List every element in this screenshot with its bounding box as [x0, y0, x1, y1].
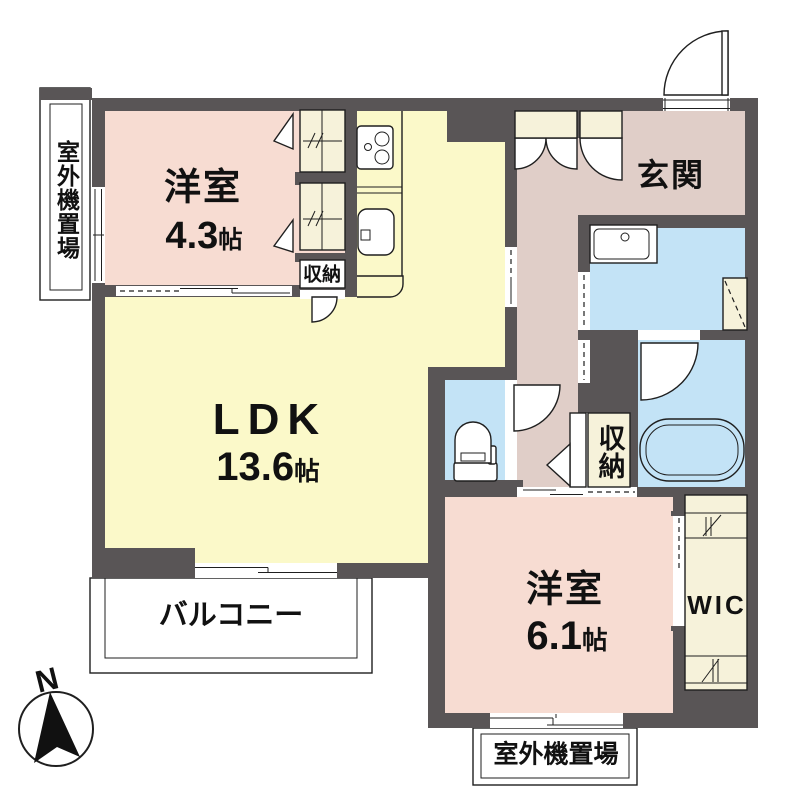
- bedroom2-size-label: 6.1帖: [526, 616, 607, 656]
- ldk-size-value: 13.6: [216, 445, 294, 489]
- bedroom1-size-unit: 帖: [218, 227, 242, 254]
- bedroom1-window: [92, 187, 105, 283]
- outdoor-unit-left-label: 室外機置場: [55, 140, 78, 260]
- shoe-cabinet-right: [580, 111, 622, 138]
- wic-label: WIC: [687, 592, 747, 618]
- ldk-hall-sliding-door: [505, 247, 517, 307]
- bedroom2-window: [490, 713, 623, 728]
- storage-side-label: 収納: [596, 424, 623, 480]
- stove-icon: [357, 126, 393, 169]
- shoe-cabinet-left: [515, 111, 577, 138]
- floorplan-canvas: 洋室 4.3帖 LDK 13.6帖 玄関 収納 収納 洋室 6.1帖 WIC バ…: [0, 0, 800, 800]
- washbasin-icon: [590, 225, 657, 263]
- balcony-label: バルコニー: [159, 602, 303, 631]
- entrance-door-leaf: [722, 31, 728, 95]
- bedroom2-size-value: 6.1: [526, 614, 582, 658]
- compass-icon: [19, 692, 93, 766]
- kitchen-sink-icon: [358, 209, 394, 255]
- bedroom1-size-label: 4.3帖: [165, 217, 242, 255]
- bedroom1-label: 洋室: [164, 169, 242, 206]
- bedroom1-closet-lower: [300, 183, 345, 250]
- entrance-door-swing: [664, 31, 728, 95]
- floorplan-drawing: [0, 0, 800, 800]
- washroom-sliding-door: [578, 272, 590, 383]
- balcony-window: [195, 563, 337, 578]
- bedroom1-size-value: 4.3: [165, 215, 218, 257]
- outdoor-unit-bottom-label: 室外機置場: [493, 743, 618, 768]
- bedroom1-closet-upper: [300, 110, 345, 172]
- storage-side-lower-opening: [585, 487, 637, 497]
- bathroom-doorway: [638, 330, 700, 340]
- storage-top-label: 収納: [303, 266, 341, 285]
- ldk-size-label: 13.6帖: [216, 447, 319, 487]
- washroom-cabinet: [723, 278, 747, 330]
- ldk-label: LDK: [213, 398, 327, 442]
- entrance-label: 玄関: [637, 159, 705, 191]
- bedroom2-sliding-door: [517, 487, 583, 497]
- bedroom2-label: 洋室: [526, 571, 604, 608]
- ldk-size-unit: 帖: [294, 458, 320, 486]
- entrance-door-opening: [663, 98, 730, 111]
- bedroom1-sliding-door: [116, 286, 292, 296]
- bedroom2-size-unit: 帖: [582, 627, 608, 655]
